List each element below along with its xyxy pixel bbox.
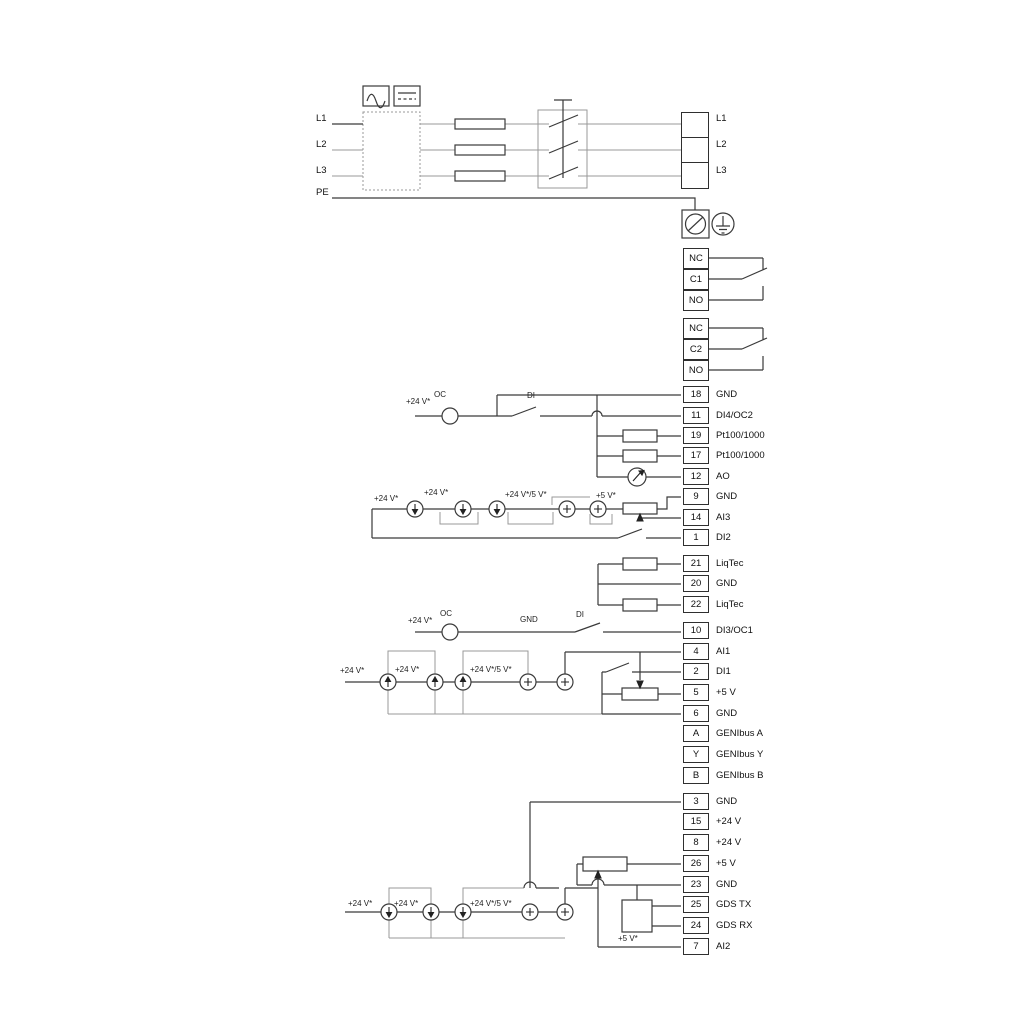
- annotation-label: +24 V*: [348, 899, 372, 908]
- annotation-label: GND: [520, 615, 538, 624]
- annotation-label: +24 V*/5 V*: [470, 899, 512, 908]
- power-terminal-cell: [681, 112, 709, 138]
- annotation-label: +24 V*: [424, 488, 448, 497]
- terminal-label: GND: [716, 708, 737, 719]
- terminal-number: Y: [683, 746, 709, 763]
- terminal-label: GND: [716, 491, 737, 502]
- terminal-number: 20: [683, 575, 709, 592]
- terminal-number: 25: [683, 896, 709, 913]
- terminal-number: B: [683, 767, 709, 784]
- terminal-number: 14: [683, 509, 709, 526]
- relay2-terminal-cell: NC: [683, 318, 709, 339]
- terminal-label: GDS RX: [716, 920, 752, 931]
- terminal-label: GND: [716, 796, 737, 807]
- terminal-label: GND: [716, 389, 737, 400]
- terminal-label: AI1: [716, 646, 730, 657]
- terminal-label: GDS TX: [716, 899, 751, 910]
- terminal-number: 6: [683, 705, 709, 722]
- terminal-label: +24 V: [716, 837, 741, 848]
- annotation-label: +24 V*: [340, 666, 364, 675]
- annotation-label: +24 V*: [374, 494, 398, 503]
- annotation-label: +24 V*: [394, 899, 418, 908]
- relay1-terminal-cell: C1: [683, 269, 709, 290]
- power-left-label: PE: [316, 187, 329, 198]
- annotation-label: +24 V*: [408, 616, 432, 625]
- terminal-label: LiqTec: [716, 558, 743, 569]
- annotation-label: OC: [440, 609, 452, 618]
- power-left-label: L1: [316, 113, 327, 124]
- terminal-label: DI4/OC2: [716, 410, 753, 421]
- annotation-label: OC: [434, 390, 446, 399]
- relay1-terminal-cell: NO: [683, 290, 709, 311]
- terminal-number: 8: [683, 834, 709, 851]
- relay2-terminal-cell: C2: [683, 339, 709, 360]
- terminal-number: 26: [683, 855, 709, 872]
- terminal-number: 10: [683, 622, 709, 639]
- terminal-label: LiqTec: [716, 599, 743, 610]
- power-terminal-cell: [681, 137, 709, 163]
- terminal-number: 5: [683, 684, 709, 701]
- terminal-number: 17: [683, 447, 709, 464]
- annotation-label: +24 V*: [395, 665, 419, 674]
- terminal-number: 21: [683, 555, 709, 572]
- annotation-label: DI: [527, 391, 535, 400]
- terminal-label: GND: [716, 879, 737, 890]
- annotation-label: +5 V*: [618, 934, 638, 943]
- annotation-label: DI: [576, 610, 584, 619]
- power-terminal-cell: [681, 162, 709, 189]
- terminal-number: 23: [683, 876, 709, 893]
- terminal-label: GENIbus Y: [716, 749, 763, 760]
- terminal-label: GENIbus B: [716, 770, 764, 781]
- terminal-label: DI2: [716, 532, 731, 543]
- annotation-label: +24 V*/5 V*: [470, 665, 512, 674]
- annotation-label: +5 V*: [596, 491, 616, 500]
- power-right-label: L1: [716, 113, 727, 124]
- terminal-label: GENIbus A: [716, 728, 763, 739]
- terminal-number: 12: [683, 468, 709, 485]
- terminal-number: 4: [683, 643, 709, 660]
- terminal-label: AO: [716, 471, 730, 482]
- terminal-label: +5 V: [716, 687, 736, 698]
- terminal-number: 22: [683, 596, 709, 613]
- terminal-number: 18: [683, 386, 709, 403]
- power-right-label: L2: [716, 139, 727, 150]
- wiring-diagram: L1L2L3PEL1L2L3NCC1NONCC2NO18GND11DI4/OC2…: [0, 0, 1024, 1024]
- terminal-number: 3: [683, 793, 709, 810]
- power-right-label: L3: [716, 165, 727, 176]
- relay1-terminal-cell: NC: [683, 248, 709, 269]
- terminal-label: AI3: [716, 512, 730, 523]
- terminal-number: 7: [683, 938, 709, 955]
- power-left-label: L2: [316, 139, 327, 150]
- terminal-number: 15: [683, 813, 709, 830]
- terminal-number: 2: [683, 663, 709, 680]
- terminal-label: +24 V: [716, 816, 741, 827]
- terminal-label: Pt100/1000: [716, 430, 765, 441]
- terminal-number: 19: [683, 427, 709, 444]
- terminal-label: AI2: [716, 941, 730, 952]
- terminal-label: DI1: [716, 666, 731, 677]
- terminal-number: 1: [683, 529, 709, 546]
- power-left-label: L3: [316, 165, 327, 176]
- terminal-label: DI3/OC1: [716, 625, 753, 636]
- terminal-label: +5 V: [716, 858, 736, 869]
- annotation-label: +24 V*: [406, 397, 430, 406]
- terminal-label: Pt100/1000: [716, 450, 765, 461]
- wiring-svg: [0, 0, 1024, 1024]
- terminal-number: 11: [683, 407, 709, 424]
- terminal-number: 24: [683, 917, 709, 934]
- terminal-number: 9: [683, 488, 709, 505]
- annotation-label: +24 V*/5 V*: [505, 490, 547, 499]
- relay2-terminal-cell: NO: [683, 360, 709, 381]
- terminal-number: A: [683, 725, 709, 742]
- terminal-label: GND: [716, 578, 737, 589]
